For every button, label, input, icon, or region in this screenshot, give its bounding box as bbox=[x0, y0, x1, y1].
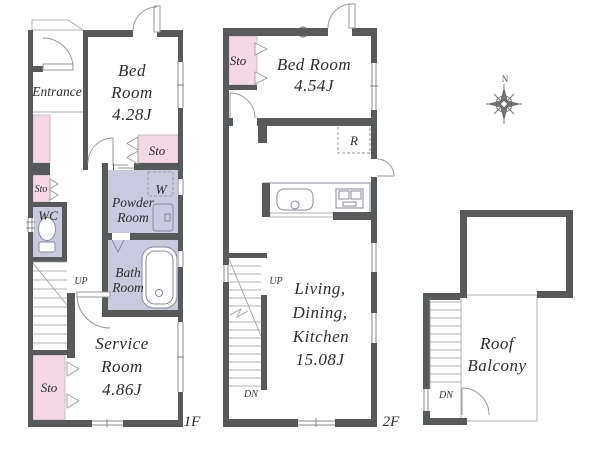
roof-balcony-door-icon bbox=[462, 388, 489, 415]
floor1-hall-closet bbox=[33, 115, 50, 163]
floorplan-page: Entrance Bed Room 4.28J Sto Sto WC Powde… bbox=[0, 0, 600, 450]
window-ldk-south bbox=[298, 418, 335, 427]
stove-grill-icon bbox=[343, 202, 356, 206]
bedroom1-size-label: 4.28J bbox=[112, 105, 153, 124]
compass-rose-icon: N bbox=[486, 74, 522, 124]
window-ldk-east-lower bbox=[370, 313, 378, 343]
wc-label: WC bbox=[38, 208, 58, 223]
kitchen-sink-icon bbox=[277, 189, 313, 210]
bedroom2-size-label: 4.54J bbox=[294, 76, 335, 95]
bedroom1-north-door-icon bbox=[133, 6, 160, 32]
counter-front-edge bbox=[270, 213, 333, 217]
window-stairs2-west bbox=[222, 265, 230, 282]
window-bedroom1-east bbox=[177, 62, 184, 108]
ldk-label-line2: Dining, bbox=[292, 303, 348, 322]
window-service-east bbox=[177, 322, 184, 392]
ldk-east-door-icon bbox=[370, 159, 394, 177]
window-service-south bbox=[92, 419, 123, 427]
stove-burner-right-icon bbox=[351, 191, 361, 199]
service-storage-label: Sto bbox=[41, 380, 58, 395]
window-roof-stairs-west bbox=[422, 389, 430, 411]
window-wc-west bbox=[26, 218, 35, 232]
bedroom2-label: Bed Room bbox=[277, 55, 351, 74]
floor2-windows bbox=[222, 63, 378, 427]
compass-north-label: N bbox=[502, 74, 509, 84]
bath-label-line1: Bath bbox=[115, 265, 141, 280]
bedroom1-label-line2: Room bbox=[110, 83, 153, 102]
service-label-line1: Service bbox=[95, 334, 149, 353]
bath-label-line2: Room bbox=[111, 280, 144, 295]
ldk-size-label: 15.08J bbox=[296, 350, 346, 369]
service-size-label: 4.86J bbox=[102, 380, 143, 399]
roof-labels: Roof Balcony DN bbox=[438, 334, 527, 401]
roof-balcony-label-line2: Balcony bbox=[467, 356, 526, 375]
floor1-stairs bbox=[33, 262, 67, 343]
window-bath-east bbox=[177, 251, 184, 267]
window-ldk-east-upper bbox=[370, 243, 378, 272]
window-powder-east bbox=[177, 179, 184, 195]
entrance-canopy bbox=[32, 20, 83, 30]
roof-stairs bbox=[430, 298, 461, 388]
floor2-plan: Sto Bed Room 4.54J R Living, Dining, Kit… bbox=[222, 4, 400, 430]
stove-burner-left-icon bbox=[339, 191, 349, 199]
bedroom1-label-line1: Bed bbox=[118, 61, 146, 80]
roof-plan: Roof Balcony DN bbox=[422, 210, 573, 425]
ldk-label-line1: Living, bbox=[293, 279, 345, 298]
floor1-up-label: UP bbox=[74, 276, 87, 287]
powder-label-line1: Powder bbox=[111, 195, 155, 210]
bedroom1-storage-label: Sto bbox=[149, 143, 166, 158]
bedroom2-door-icon bbox=[230, 93, 255, 118]
roof-dn-label: DN bbox=[438, 390, 454, 401]
entrance-door-icon bbox=[43, 38, 73, 70]
washer-label: W bbox=[155, 182, 168, 197]
powder-sliding-door-icon bbox=[112, 163, 134, 170]
service-label-line2: Room bbox=[100, 357, 143, 376]
entrance-label: Entrance bbox=[31, 84, 82, 99]
ldk-label-line3: Kitchen bbox=[292, 327, 349, 346]
roof-windows bbox=[422, 389, 430, 411]
bedroom2-north-door-icon bbox=[328, 4, 355, 28]
floor2-label: 2F bbox=[383, 414, 401, 430]
floor2-stairs bbox=[229, 259, 261, 386]
floor2-dn-label: DN bbox=[243, 389, 259, 400]
floor1-label: 1F bbox=[184, 414, 202, 430]
floor2-up-label: UP bbox=[269, 276, 282, 287]
window-bedroom2-east bbox=[370, 63, 378, 110]
bedroom1-hall-door-icon bbox=[88, 138, 113, 163]
floor1-plan: Entrance Bed Room 4.28J Sto Sto WC Powde… bbox=[26, 6, 201, 430]
hall-storage-label: Sto bbox=[35, 184, 48, 195]
floorplan-drawing: Entrance Bed Room 4.28J Sto Sto WC Powde… bbox=[0, 0, 600, 450]
roof-balcony-label-line1: Roof bbox=[479, 334, 516, 353]
refrigerator-label: R bbox=[349, 133, 358, 148]
floor2-storage-label: Sto bbox=[230, 53, 247, 68]
powder-label-line2: Room bbox=[116, 210, 149, 225]
toilet-tank-icon bbox=[39, 242, 55, 252]
